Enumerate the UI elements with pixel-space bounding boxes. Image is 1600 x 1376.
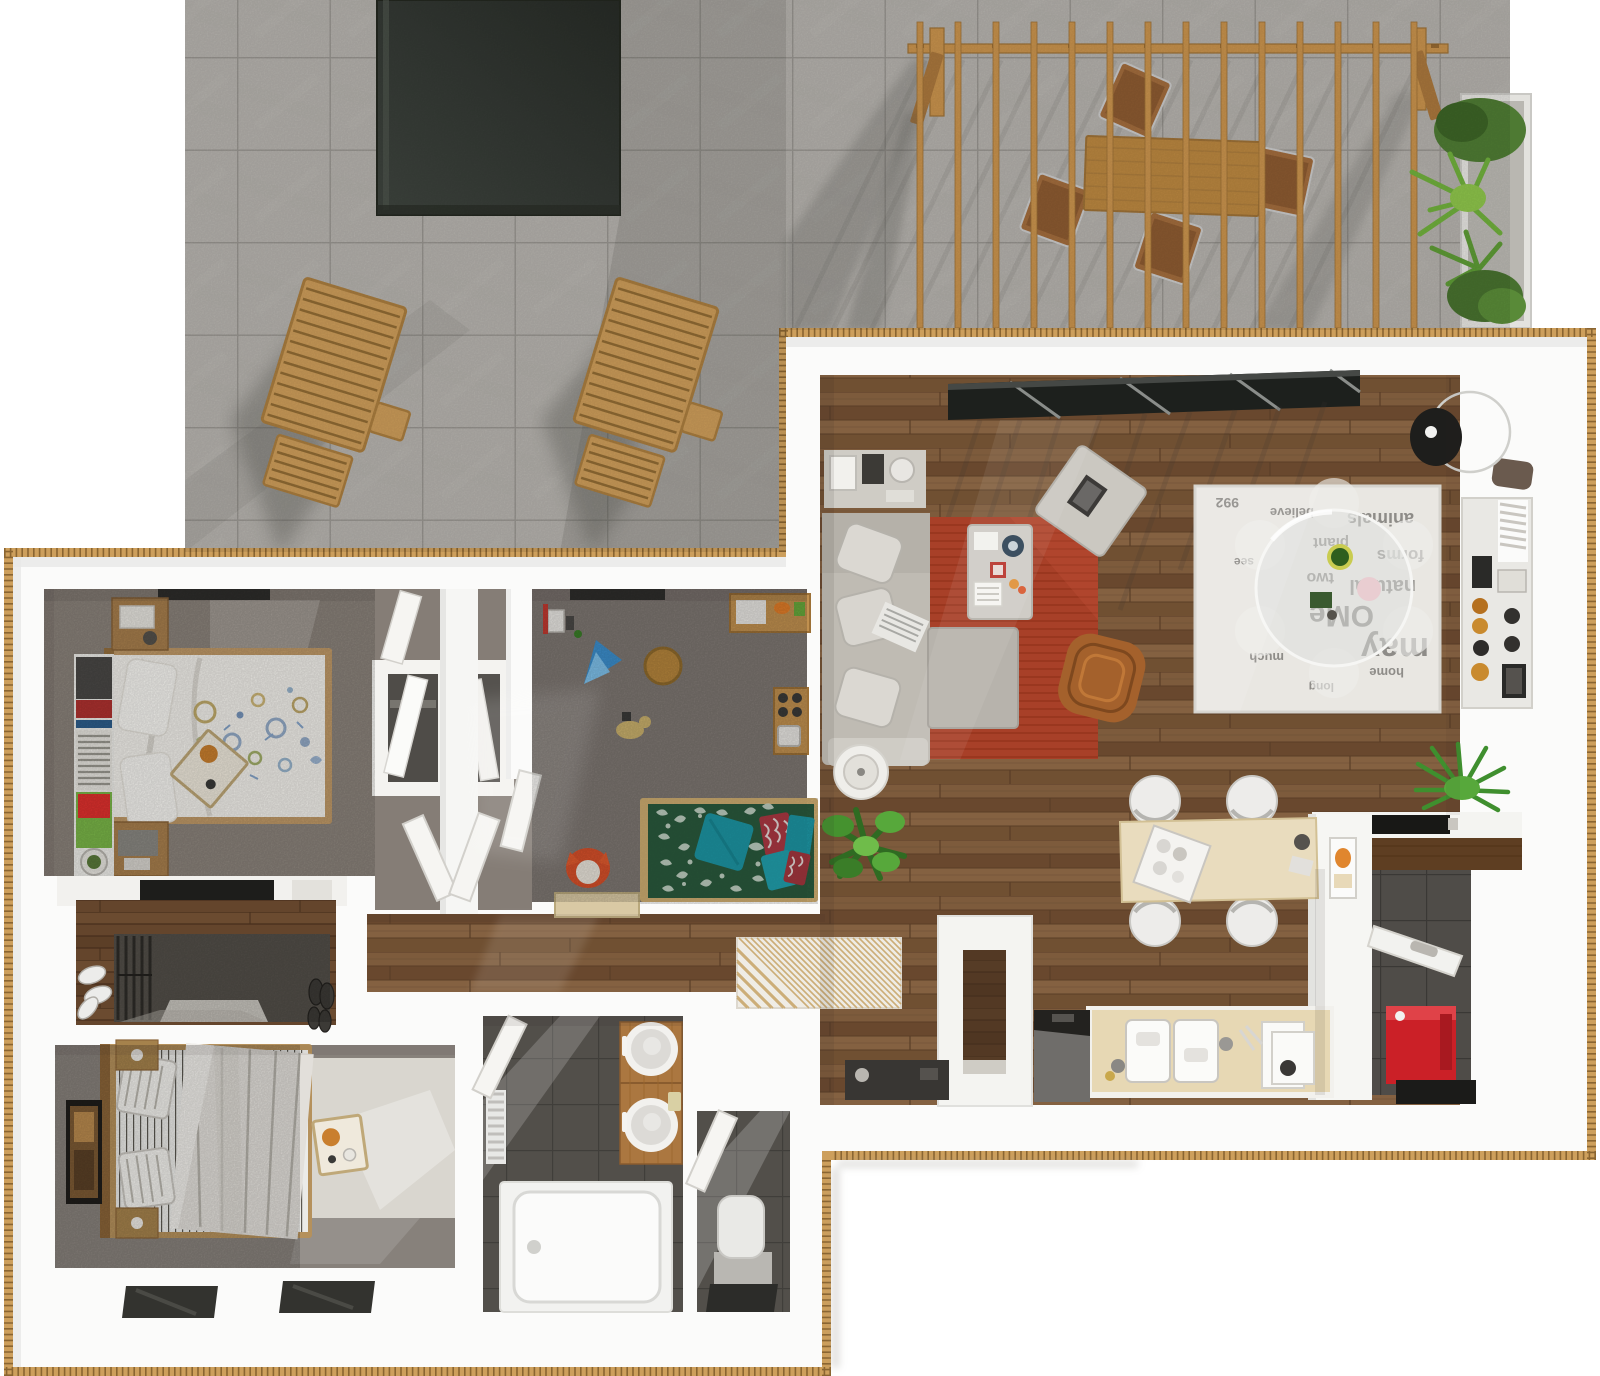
svg-text:home: home — [1369, 665, 1404, 680]
